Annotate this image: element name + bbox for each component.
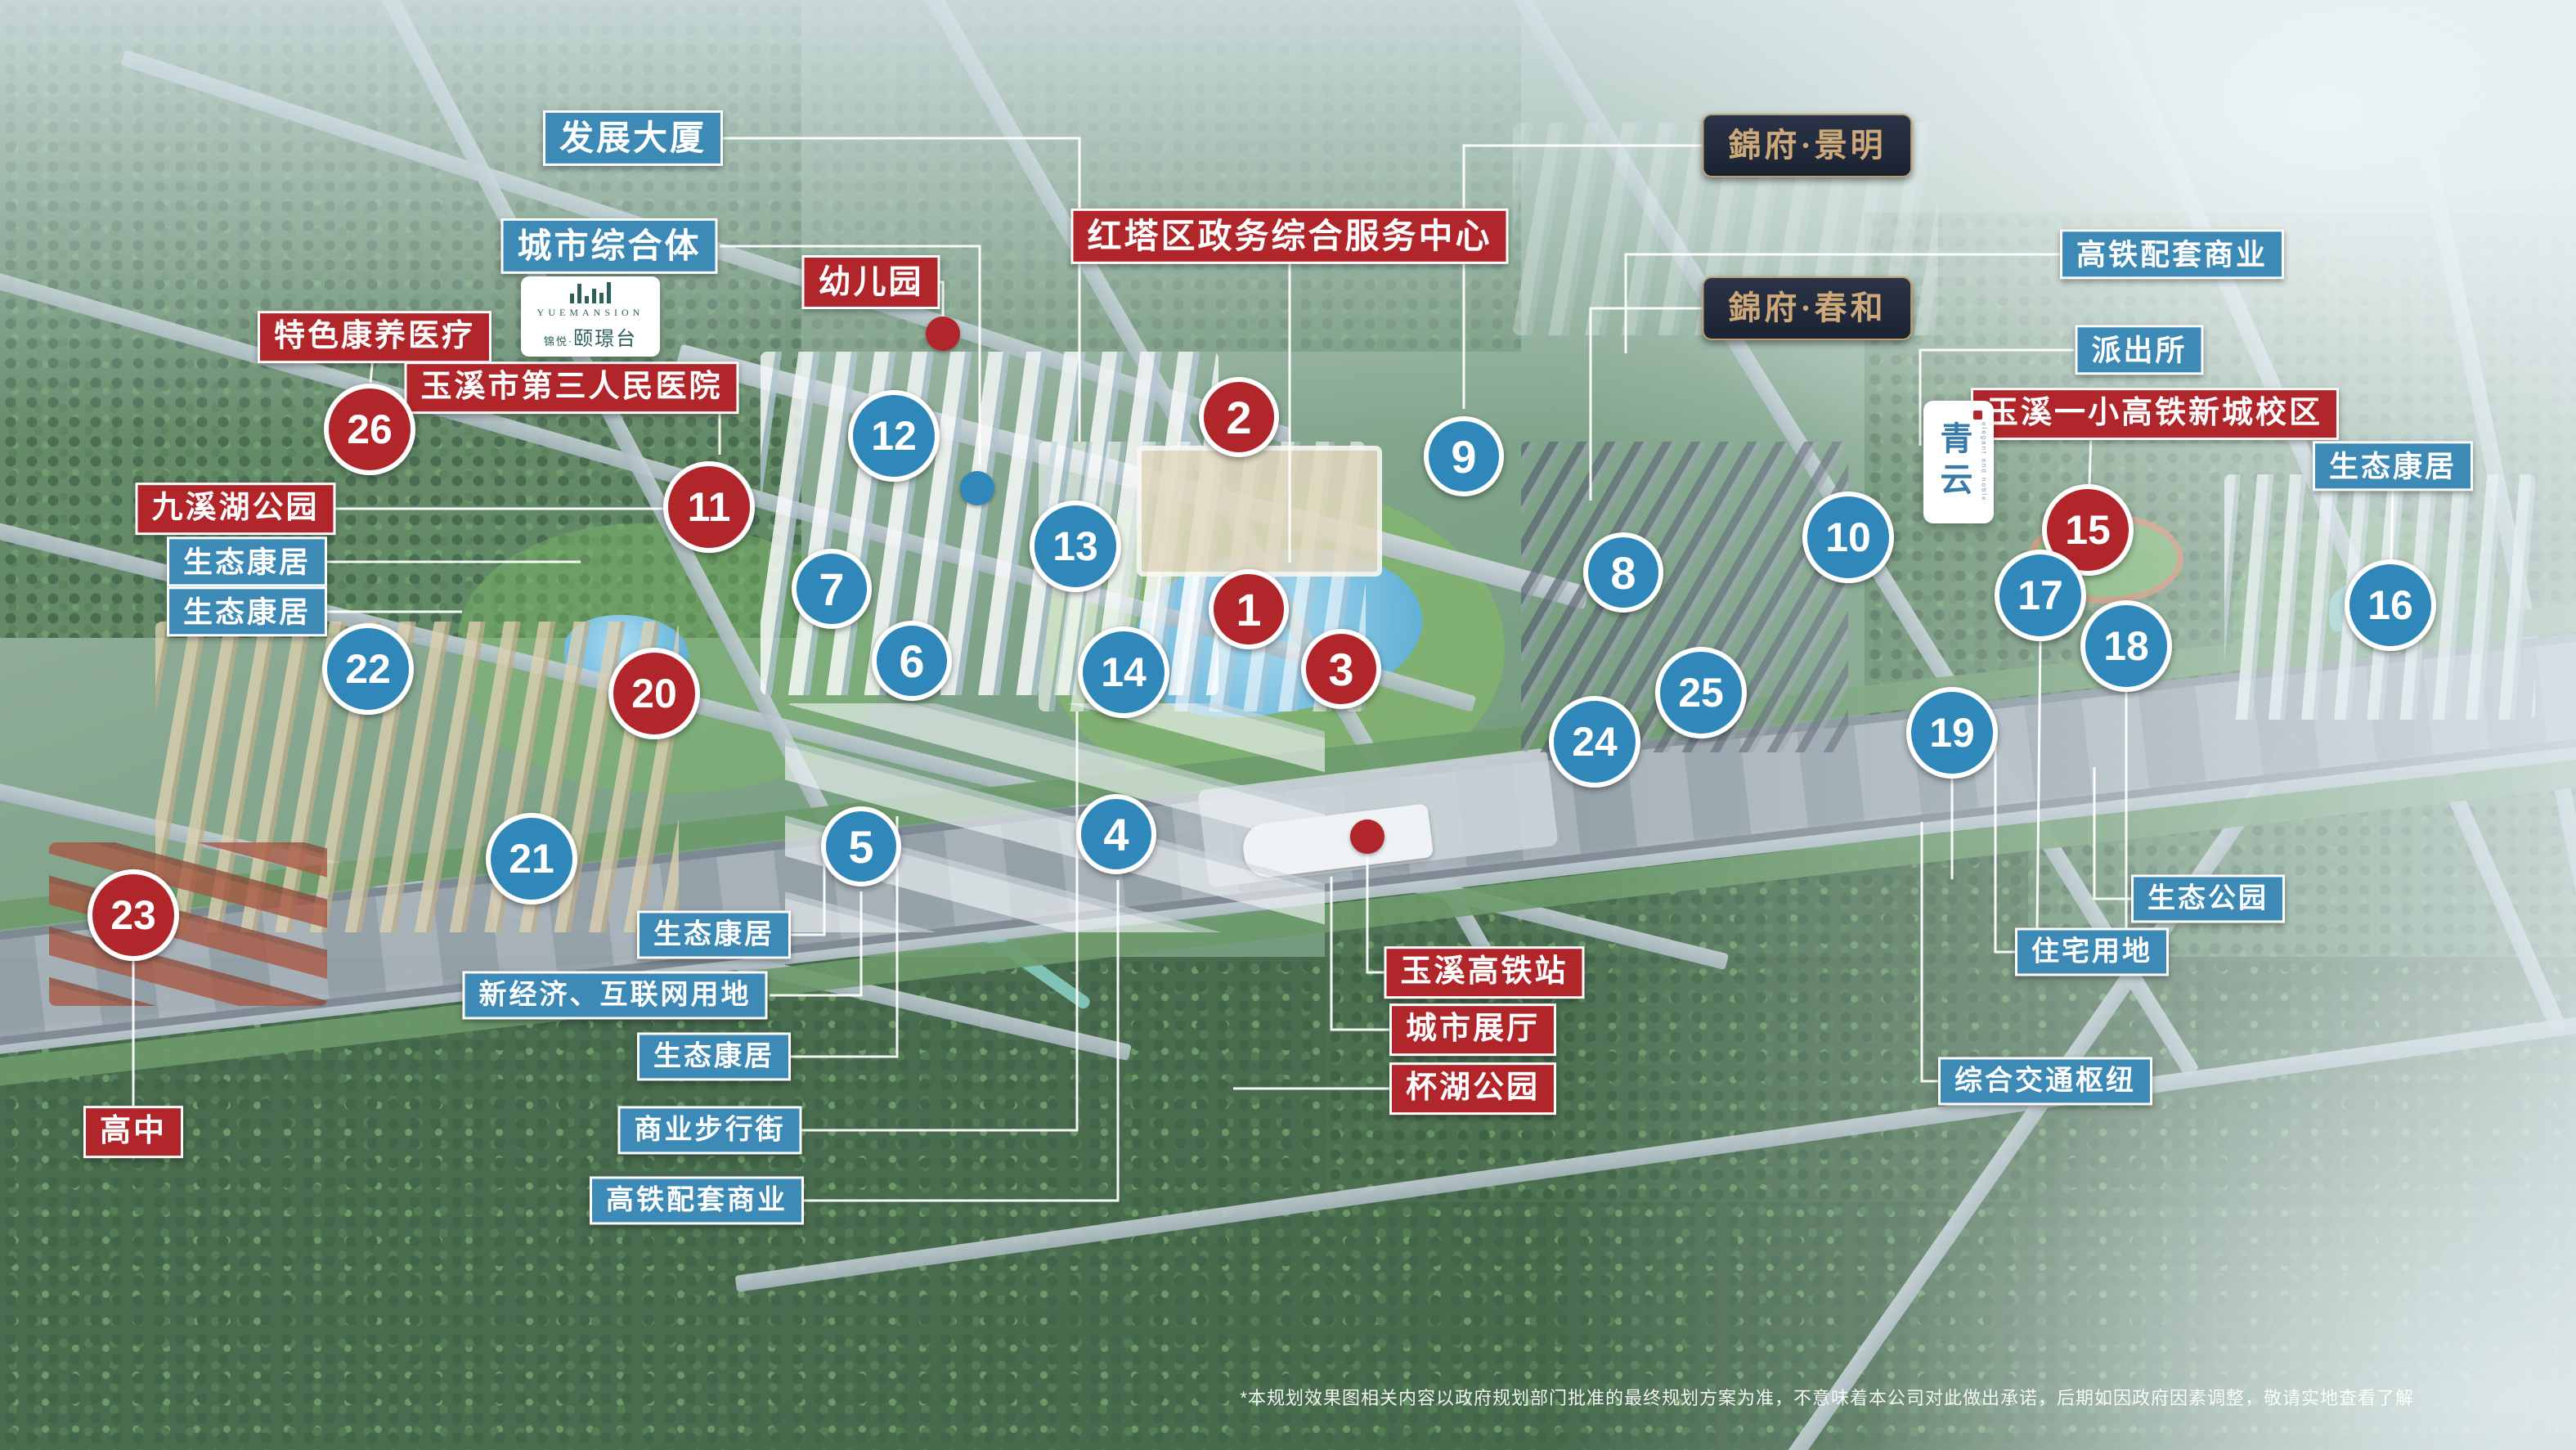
map-marker-23: 23 <box>88 869 179 961</box>
yuemansion-logo-en: YUEMANSION <box>537 307 644 319</box>
map-marker-11: 11 <box>663 461 755 553</box>
qingyun-logo-card: 青云 elegant and noble <box>1923 401 1994 523</box>
map-dot-kindergarten-dot <box>926 316 960 351</box>
map-marker-3: 3 <box>1301 629 1381 709</box>
map-label-hongtaqu-zhengwu-zhongxin: 红塔区政务综合服务中心 <box>1070 209 1508 264</box>
leader-line-9 <box>2391 484 2393 561</box>
leader-line-20 <box>770 880 1118 1201</box>
map-marker-19: 19 <box>1906 687 1998 779</box>
map-label-gaotie-peitao-shangye-top: 高铁配套商业 <box>2060 229 2284 279</box>
yuemansion-logo-card: YUEMANSION 锦悦·颐璟台 <box>521 276 660 357</box>
map-marker-9: 9 <box>1424 416 1504 496</box>
map-marker-10: 10 <box>1802 492 1894 583</box>
map-label-chengshi-zhanting: 城市展厅 <box>1389 1003 1556 1056</box>
map-label-gaozhong: 高中 <box>83 1106 183 1158</box>
map-label-shengtai-kangju-w2: 生态康居 <box>167 586 327 636</box>
map-label-yuxi-yixiao-xiaoqu: 玉溪一小高铁新城校区 <box>1971 388 2339 440</box>
yuemansion-logo-cn: 锦悦·颐璟台 <box>544 322 637 351</box>
leader-line-4 <box>1464 146 1735 409</box>
map-label-jiuxihu-gongyuan: 九溪湖公园 <box>135 483 335 535</box>
map-label-fazhan-dasha: 发展大厦 <box>543 110 723 166</box>
leader-line-19 <box>770 712 1077 1130</box>
map-marker-26: 26 <box>324 384 415 475</box>
disclaimer-text: *本规划效果图相关内容以政府规划部门批准的最终规划方案为准，不意味着本公司对此做… <box>1240 1384 2414 1410</box>
yuemansion-logo-icon <box>570 282 611 303</box>
map-label-disan-renmin-yiyuan: 玉溪市第三人民医院 <box>404 361 738 414</box>
map-label-zonghe-jiaotong-shuniu: 综合交通枢纽 <box>1938 1057 2152 1105</box>
map-label-jinfu-chunhe: 錦府·春和 <box>1702 276 1912 340</box>
leader-line-27 <box>2037 638 2040 932</box>
map-marker-13: 13 <box>1030 501 1121 592</box>
qingyun-seal-icon <box>1973 411 1982 420</box>
map-marker-2: 2 <box>1199 377 1279 457</box>
map-marker-25: 25 <box>1655 647 1747 738</box>
qingyun-logo-side-text: elegant and noble <box>1981 422 1988 502</box>
map-marker-8: 8 <box>1583 532 1663 613</box>
map-label-shangye-buxingjie: 商业步行街 <box>618 1106 802 1154</box>
map-label-shengtai-kangju-b2: 生态康居 <box>637 1032 791 1080</box>
map-label-yuxi-gaotiezhan: 玉溪高铁站 <box>1384 946 1584 999</box>
map-marker-1: 1 <box>1209 569 1289 649</box>
qingyun-logo-cn: 青云 <box>1930 421 1977 503</box>
map-label-youeryuan: 幼儿园 <box>802 255 940 309</box>
map-dot-station-dot <box>1350 819 1384 854</box>
map-label-chengshi-zongheti: 城市综合体 <box>500 218 717 274</box>
map-marker-17: 17 <box>1995 550 2086 641</box>
map-label-paichusuo: 派出所 <box>2075 325 2203 375</box>
map-label-shengtai-kangju-right: 生态康居 <box>2313 441 2473 491</box>
map-marker-24: 24 <box>1549 696 1640 788</box>
map-marker-4: 4 <box>1076 794 1156 874</box>
map-marker-22: 22 <box>322 623 414 715</box>
map-marker-20: 20 <box>608 648 700 739</box>
map-marker-12: 12 <box>848 390 940 482</box>
map-label-jinfu-jingming: 錦府·景明 <box>1702 114 1912 177</box>
map-label-shengtai-kangju-b1: 生态康居 <box>637 910 791 958</box>
map-marker-7: 7 <box>792 549 872 629</box>
map-marker-5: 5 <box>821 806 901 887</box>
map-label-beihu-gongyuan: 杯湖公园 <box>1389 1062 1556 1115</box>
map-label-shengtai-gongyuan: 生态公园 <box>2131 874 2285 923</box>
map-label-gaotie-peitao-shangye-bottom: 高铁配套商业 <box>590 1176 804 1224</box>
map-marker-6: 6 <box>872 621 952 701</box>
map-dot-city-complex-dot <box>960 471 994 505</box>
masterplan-aerial-map: 发展大厦城市综合体幼儿园红塔区政务综合服务中心錦府·景明錦府·春和高铁配套商业派… <box>0 0 2576 1450</box>
map-marker-16: 16 <box>2345 559 2436 651</box>
map-marker-14: 14 <box>1078 626 1169 718</box>
map-label-shengtai-kangju-w1: 生态康居 <box>167 536 327 586</box>
leader-line-8 <box>2089 433 2091 484</box>
map-label-tese-kangyang-yiliao: 特色康养医疗 <box>258 311 491 363</box>
leader-line-26 <box>1922 822 1947 1081</box>
map-label-zhuzhai-yongdi: 住宅用地 <box>2015 927 2169 976</box>
map-marker-21: 21 <box>486 813 577 905</box>
map-marker-18: 18 <box>2080 600 2172 692</box>
map-label-xinjingji-hulianwang: 新经济、互联网用地 <box>463 971 768 1019</box>
leader-line-25 <box>1995 743 2022 952</box>
